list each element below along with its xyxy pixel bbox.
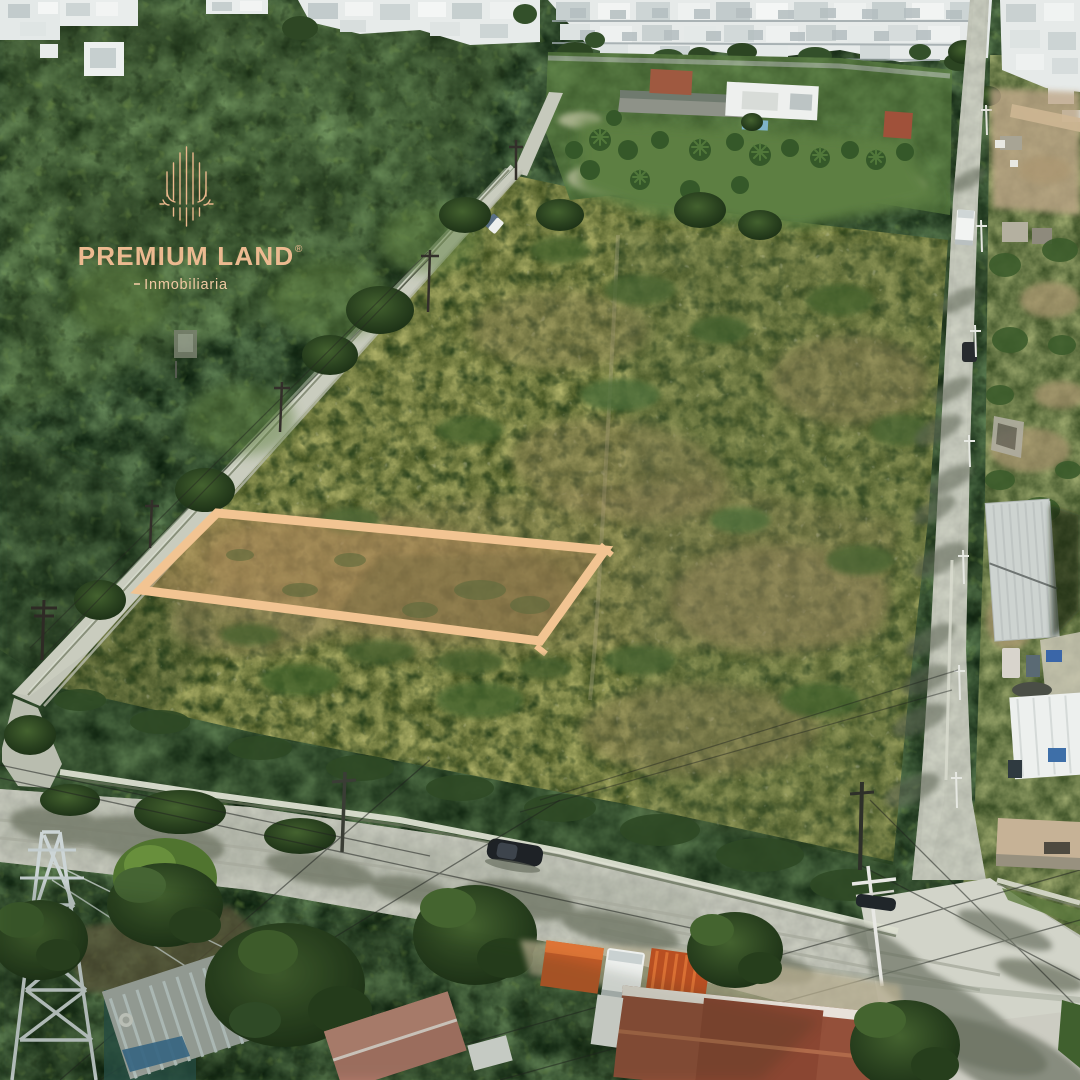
svg-text:Inmobiliaria: Inmobiliaria: [144, 277, 228, 293]
svg-text:®: ®: [295, 244, 303, 255]
svg-text:PREMIUM LAND: PREMIUM LAND: [78, 241, 295, 271]
